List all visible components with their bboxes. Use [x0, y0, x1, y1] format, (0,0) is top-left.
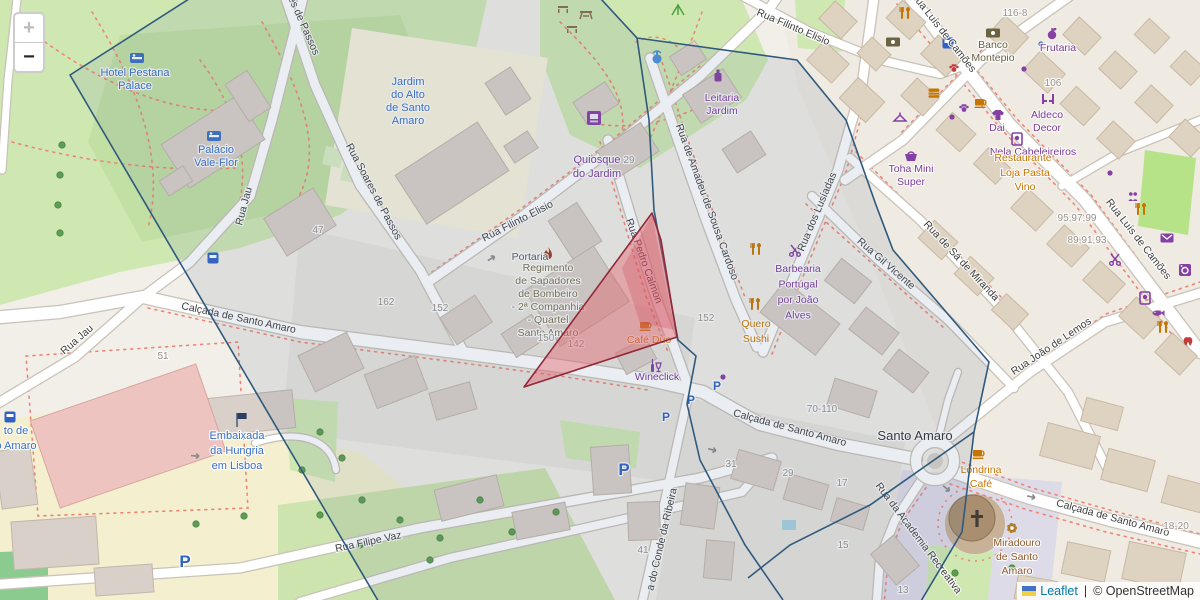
tram-icon — [5, 412, 16, 423]
map-canvas[interactable]: Rua JauRua Jaues de PassosRua Soares de … — [0, 0, 1200, 600]
house-number: 95,97,99 — [1058, 213, 1097, 224]
leaflet-link[interactable]: Leaflet — [1040, 584, 1078, 598]
parking-icon: P — [179, 552, 190, 571]
burger-icon — [929, 89, 940, 98]
house-number: 51 — [157, 351, 169, 362]
dot-icon — [949, 114, 954, 119]
ukraine-flag-icon — [1022, 586, 1036, 596]
lime-area — [1138, 150, 1196, 235]
zoom-in-button[interactable]: + — [15, 14, 43, 43]
tree-icon — [55, 202, 61, 208]
poi-label: Embaixada — [209, 430, 265, 442]
poi-label: o Amaro — [0, 440, 36, 452]
osm-copyright[interactable]: © OpenStreetMap — [1093, 584, 1194, 598]
house-number: 18-20 — [1163, 521, 1189, 532]
washer-icon — [1179, 264, 1191, 276]
banknote-icon — [886, 38, 900, 47]
poi-label: Miradouro — [993, 537, 1040, 549]
poi-label: Loja Pasta — [1000, 167, 1050, 179]
dot-icon — [1107, 170, 1112, 175]
zoom-out-button[interactable]: − — [15, 43, 43, 71]
tree-icon — [317, 512, 323, 518]
envelope-icon — [1161, 234, 1174, 243]
poi-label: Banco — [978, 39, 1008, 51]
zoom-control: + − — [13, 12, 45, 73]
banknote-icon — [986, 29, 1000, 38]
poi-label: Dai — [989, 122, 1005, 134]
map-viewport: Rua JauRua Jaues de PassosRua Soares de … — [0, 0, 1200, 600]
poi-label: Frutaria — [1040, 42, 1076, 54]
poi-label: Toha Mini — [889, 163, 934, 175]
building — [94, 564, 154, 596]
poi-label: Amaro — [1002, 565, 1033, 577]
poi-label: Restaurante — [994, 152, 1051, 164]
poi-label: em Lisboa — [212, 460, 264, 472]
attribution-separator: | — [1084, 584, 1087, 598]
building — [11, 516, 99, 570]
house-number: 106 — [1045, 78, 1062, 89]
poi-label: Aldeco — [1031, 109, 1063, 121]
dot-icon — [1021, 66, 1026, 71]
poi-label: Montepio — [971, 52, 1014, 64]
attribution: Leaflet | © OpenStreetMap — [1017, 582, 1200, 600]
house-number: 116-8 — [1003, 8, 1028, 19]
tree-icon — [57, 172, 63, 178]
poi-label: Vino — [1015, 181, 1036, 193]
poi-label: de Santo — [996, 551, 1038, 563]
tree-icon — [57, 230, 63, 236]
tree-icon — [241, 513, 247, 519]
poi-label: to de — [4, 425, 28, 437]
poi-label: da Hungria — [210, 445, 265, 457]
poi-label: Café — [970, 478, 992, 490]
poi-label: Super — [897, 176, 926, 188]
house-number: 89,91,93 — [1068, 235, 1107, 246]
tree-icon — [193, 521, 199, 527]
poi-label: Decor — [1033, 122, 1062, 134]
tree-icon — [59, 142, 65, 148]
